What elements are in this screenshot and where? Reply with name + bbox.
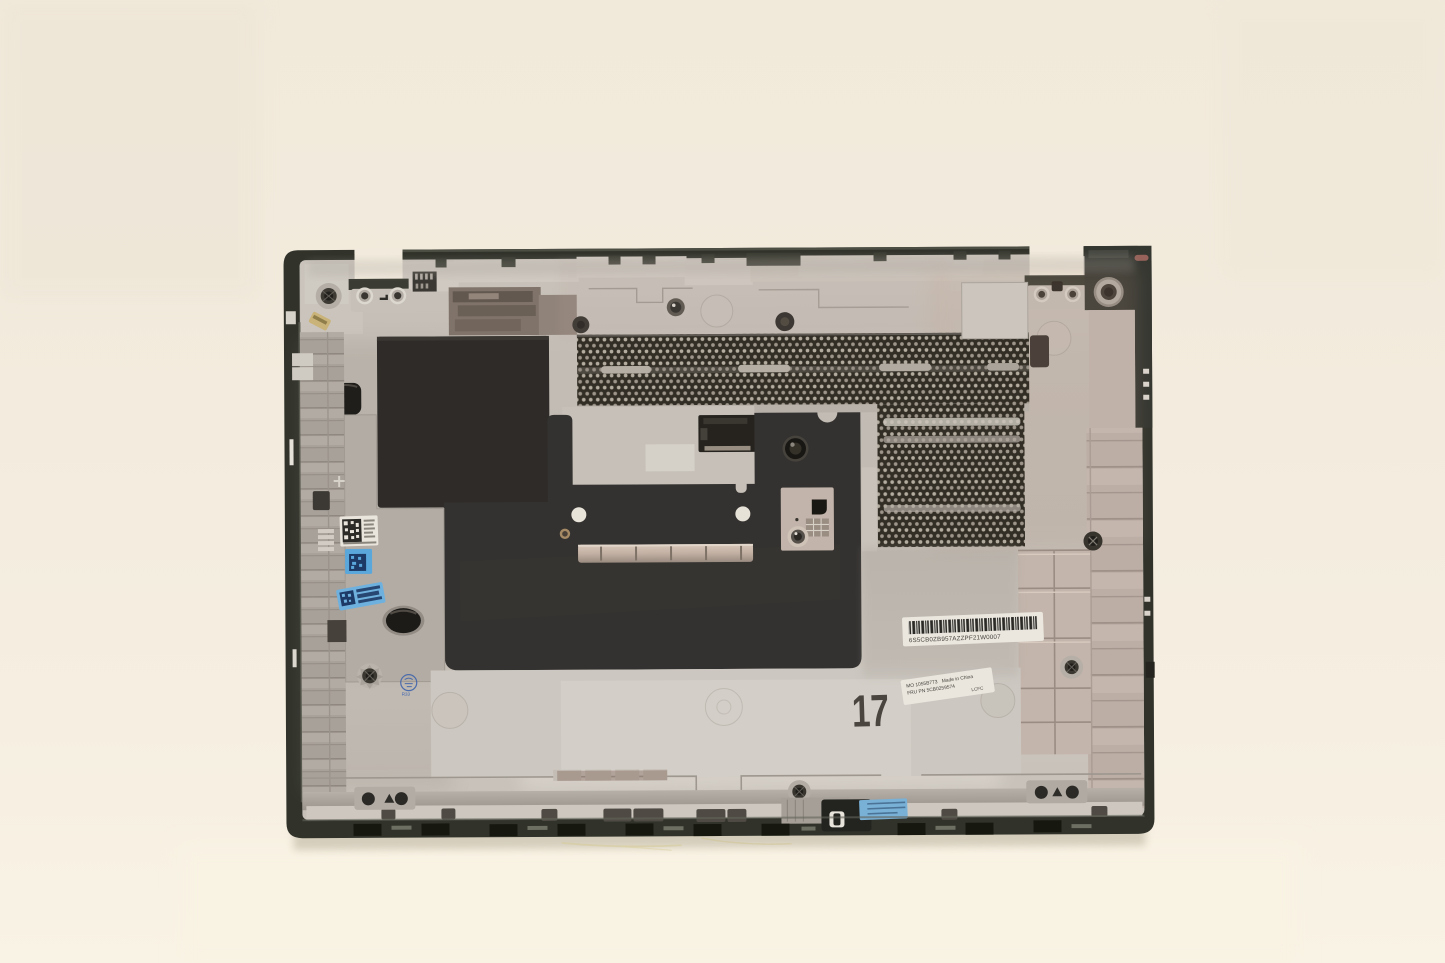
svg-text:17: 17 (851, 685, 890, 737)
svg-text:R33: R33 (402, 692, 411, 697)
